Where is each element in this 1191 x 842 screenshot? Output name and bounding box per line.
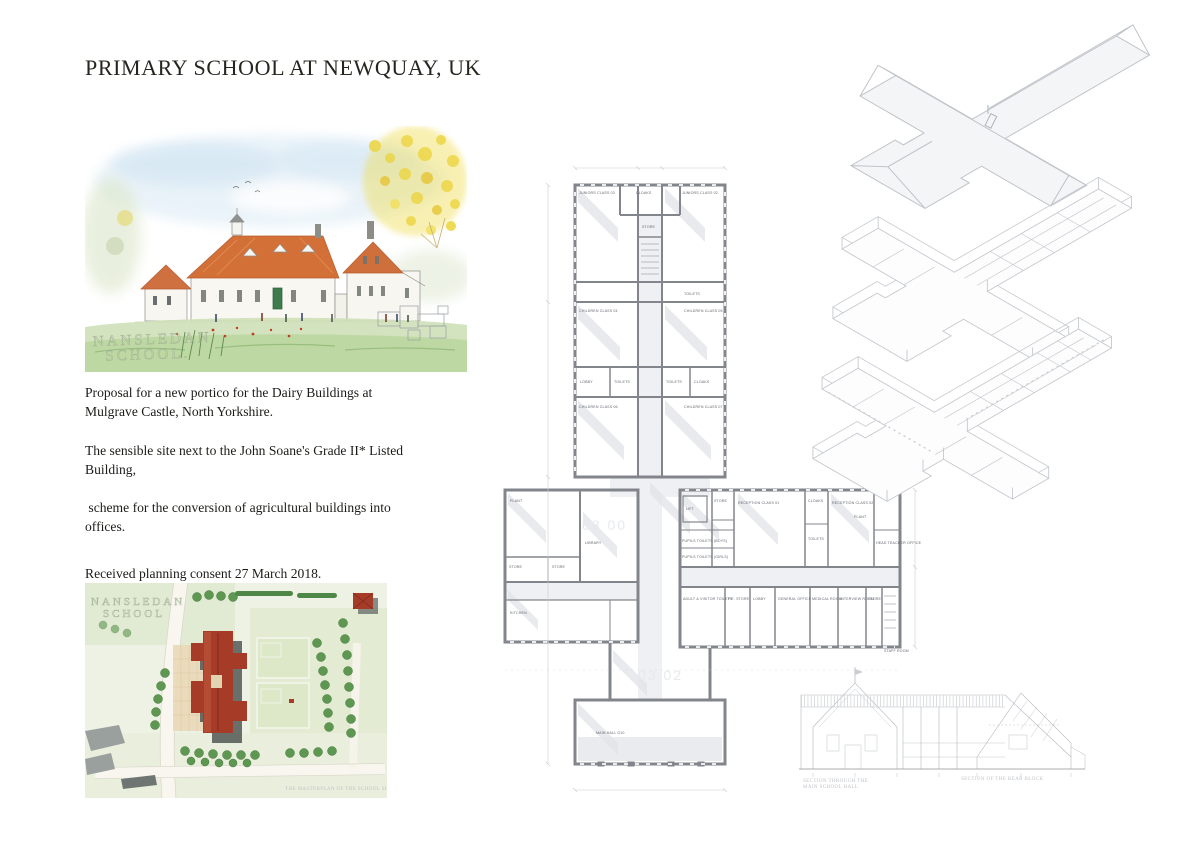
axon-ground-floor [813, 317, 1112, 501]
room-label: PUPILS TOILETS (GIRLS) [682, 555, 728, 559]
siteplan-watermark-line1: NANSLEDAN [91, 596, 185, 608]
page-title: PRIMARY SCHOOL AT NEWQUAY, UK [85, 55, 481, 81]
room-label: RECEPTION CLASS 01 [738, 501, 779, 505]
section-linework [799, 667, 1085, 777]
project-description: Proposal for a new portico for the Dairy… [85, 383, 409, 556]
room-label: TOILETS [614, 380, 630, 384]
room-label: JUNIORS CLASS 03 [579, 191, 615, 195]
section-caption-right: SECTION OF THE REAR BLOCK [961, 777, 1043, 782]
room-label: LOBBY [580, 380, 593, 384]
room-label: JUNIORS CLASS 02 [682, 191, 718, 195]
room-label: KITCHEN [510, 611, 527, 615]
room-label: CLOAKS [694, 380, 710, 384]
room-label: CHILDREN CLASS 05 [684, 309, 723, 313]
section-caption-left-line2: MAIN SCHOOL HALL [803, 785, 858, 790]
room-label: CHILDREN CLASS 04 [579, 309, 618, 313]
description-paragraph-2: The sensible site next to the John Soane… [85, 441, 409, 480]
room-label: HEAD TEACHER OFFICE [876, 541, 922, 545]
room-label: STORE [552, 565, 566, 569]
room-label: TOILETS [684, 292, 700, 296]
room-label: LOBBY [753, 597, 766, 601]
axonometric-stack [790, 20, 1190, 520]
room-label: MAIN HALL G10 [596, 731, 625, 735]
room-label: CHILDREN CLASS 07 [684, 405, 723, 409]
room-label: LIBRARY [585, 541, 602, 545]
room-label: PLANT [510, 499, 523, 503]
description-paragraph-1: Proposal for a new portico for the Dairy… [85, 383, 409, 422]
yellow-tree [363, 126, 467, 248]
room-label: LIFT [686, 507, 695, 511]
room-label: CHILDREN CLASS 06 [579, 405, 618, 409]
room-label: STAFF ROOM [884, 649, 909, 653]
siteplan-watermark-line2: SCHOOL [103, 608, 165, 620]
room-label: CLOAKS [636, 191, 652, 195]
room-label: TOILETS [808, 537, 824, 541]
section-caption-left-line1: SECTION THROUGH THE [803, 779, 868, 784]
siteplan-caption: THE MASTERPLAN OF THE SCHOOL SITE [285, 787, 387, 792]
room-label: MEDICAL ROOM [812, 597, 842, 601]
room-label: STORE [509, 565, 523, 569]
room-label: GENERAL OFFICE [778, 597, 812, 601]
room-label: STORE [868, 597, 882, 601]
ghost-figure-1: 08 00 [582, 517, 627, 533]
room-label: ADULT & VISITOR TOILETS [683, 597, 733, 601]
room-label: P.E. STORE [728, 597, 750, 601]
room-label: TOILETS [666, 380, 682, 384]
green-door [273, 288, 282, 309]
site-plan-figure: NANSLEDAN SCHOOL THE MASTERPLAN OF THE S… [85, 583, 387, 798]
perspective-illustration: NANSLEDAN SCHOOL. [85, 126, 467, 372]
description-paragraph-3: scheme for the conversion of agricultura… [85, 498, 409, 537]
ghost-figure-2: 03 02 [638, 667, 683, 683]
room-label: STORE [714, 499, 728, 503]
playing-fields [257, 638, 309, 728]
planning-consent-note: Received planning consent 27 March 2018. [85, 566, 321, 582]
section-drawing: SECTION THROUGH THE MAIN SCHOOL HALL SEC… [793, 665, 1091, 795]
presentation-board: PRIMARY SCHOOL AT NEWQUAY, UK [0, 0, 1191, 842]
room-label: STORE [642, 225, 656, 229]
illustration-watermark-line2: SCHOOL. [105, 346, 190, 365]
room-label: PUPILS TOILETS (BOYS) [682, 539, 727, 543]
